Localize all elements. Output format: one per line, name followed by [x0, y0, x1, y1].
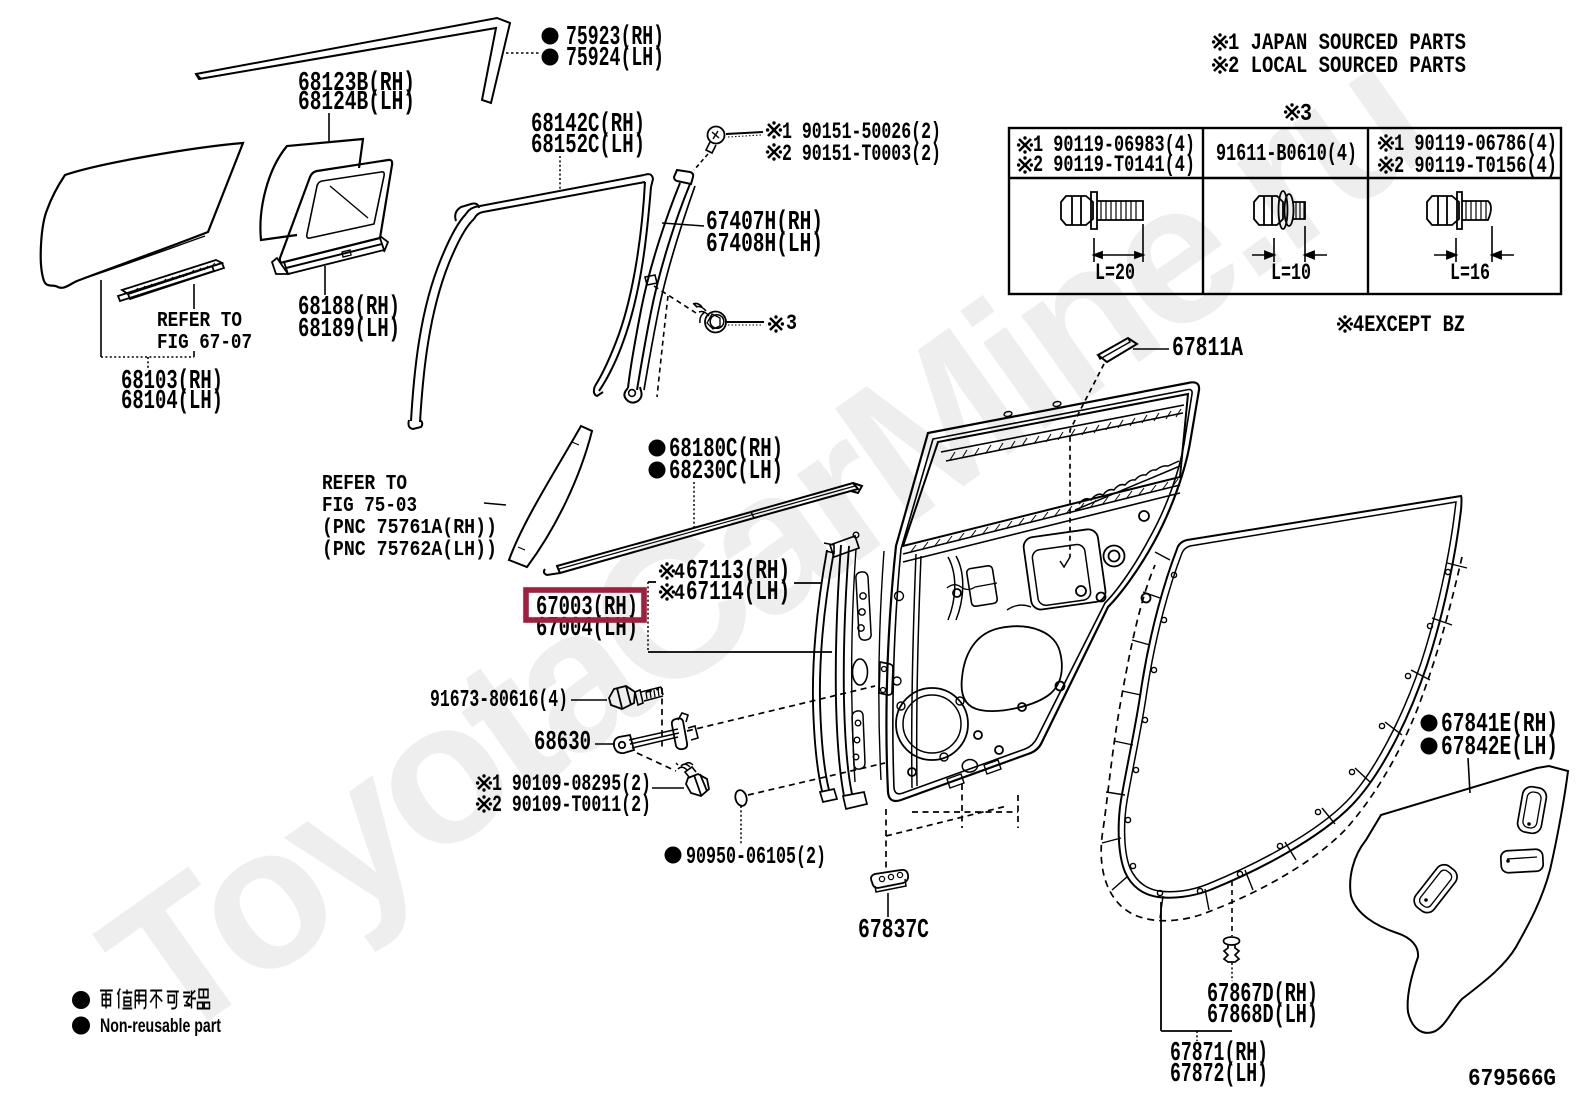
svg-text:67408H(LH): 67408H(LH) [706, 230, 823, 260]
svg-text:67837C: 67837C [858, 916, 929, 946]
svg-text:68189(LH): 68189(LH) [298, 315, 400, 345]
svg-text:FIG 75-03: FIG 75-03 [322, 495, 417, 518]
svg-text:L=20: L=20 [1095, 260, 1135, 286]
svg-text:67114(LH): 67114(LH) [686, 578, 790, 608]
svg-text:Non-reusable part: Non-reusable part [100, 1016, 221, 1037]
svg-text:68152C(LH): 68152C(LH) [531, 131, 645, 161]
svg-text:(PNC 75761A(RH)): (PNC 75761A(RH)) [322, 517, 497, 540]
svg-text:4: 4 [674, 581, 685, 606]
svg-text:FIG 67-07: FIG 67-07 [157, 332, 252, 355]
svg-text:90950-06105(2): 90950-06105(2) [686, 844, 826, 871]
svg-text:91673-80616(4): 91673-80616(4) [430, 687, 568, 714]
svg-text:REFER TO: REFER TO [157, 310, 242, 333]
svg-text:68230C(LH): 68230C(LH) [669, 457, 783, 487]
svg-text:2 90119-T0156(4): 2 90119-T0156(4) [1394, 153, 1557, 179]
svg-text:3: 3 [786, 311, 797, 336]
svg-text:67868D(LH): 67868D(LH) [1207, 1001, 1318, 1031]
svg-text:2 90119-T0141(4): 2 90119-T0141(4) [1033, 152, 1195, 178]
svg-text:679566G: 679566G [1468, 1066, 1556, 1093]
svg-text:67872(LH): 67872(LH) [1170, 1060, 1268, 1090]
svg-text:L=16: L=16 [1450, 260, 1490, 286]
svg-text:67811A: 67811A [1172, 334, 1244, 364]
svg-text:(PNC 75762A(LH)): (PNC 75762A(LH)) [322, 539, 497, 562]
svg-text:67842E(LH): 67842E(LH) [1441, 733, 1558, 763]
svg-text:75924(LH): 75924(LH) [566, 44, 664, 74]
svg-text:3: 3 [1300, 101, 1312, 128]
svg-text:2 LOCAL SOURCED PARTS: 2 LOCAL SOURCED PARTS [1228, 53, 1466, 79]
svg-text:2 90151-T0003(2): 2 90151-T0003(2) [782, 141, 941, 167]
svg-text:68124B(LH): 68124B(LH) [298, 88, 415, 118]
svg-text:4EXCEPT BZ: 4EXCEPT BZ [1353, 312, 1465, 338]
svg-text:68104(LH): 68104(LH) [121, 387, 223, 417]
svg-text:REFER TO: REFER TO [322, 473, 407, 496]
svg-text:L=10: L=10 [1271, 260, 1311, 286]
svg-text:91611-B0610(4): 91611-B0610(4) [1216, 141, 1357, 168]
svg-text:68630: 68630 [534, 728, 591, 758]
svg-text:2 90109-T0011(2): 2 90109-T0011(2) [492, 792, 651, 818]
